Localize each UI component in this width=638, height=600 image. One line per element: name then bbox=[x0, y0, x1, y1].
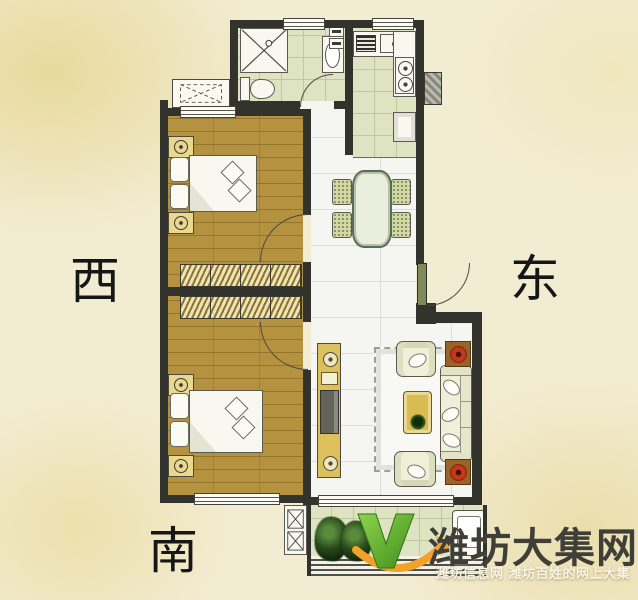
balcony-wall-left bbox=[307, 505, 311, 576]
chair-icon bbox=[391, 212, 411, 238]
dining-table-icon bbox=[352, 170, 392, 248]
window-icon bbox=[180, 106, 236, 118]
entry-door-arc-icon bbox=[427, 263, 470, 306]
balcony-sliding-door-icon bbox=[318, 495, 454, 507]
kitchen-cabinet bbox=[393, 112, 416, 142]
blanket-fold bbox=[190, 183, 214, 211]
coffee-table-icon bbox=[403, 391, 432, 434]
plant-stand-icon bbox=[445, 459, 471, 485]
chair-icon bbox=[332, 179, 352, 205]
wardrobe-icon bbox=[180, 264, 302, 287]
wall-left bbox=[160, 100, 168, 503]
pillow-icon bbox=[170, 157, 189, 182]
wall-bath-kitchen-divider bbox=[345, 20, 353, 155]
duct-box-icon bbox=[329, 38, 344, 49]
wall-mid-upper bbox=[303, 108, 311, 215]
pillow-icon bbox=[170, 421, 189, 447]
window-icon bbox=[283, 18, 325, 30]
wall-bedroom-divider bbox=[160, 287, 311, 296]
flower-icon bbox=[450, 346, 467, 363]
pillow-icon bbox=[170, 184, 189, 209]
bed-icon bbox=[189, 155, 257, 212]
chair-icon bbox=[332, 212, 352, 238]
shower-icon bbox=[240, 28, 288, 73]
window-icon bbox=[372, 18, 414, 30]
armchair-icon bbox=[394, 451, 436, 487]
compass-south-label: 南 bbox=[148, 526, 198, 576]
bed-icon bbox=[189, 390, 263, 453]
nightstand-icon bbox=[168, 212, 194, 234]
entry-door-slab bbox=[417, 263, 427, 306]
sofa-icon bbox=[440, 365, 472, 462]
ac-platform-icon bbox=[172, 79, 230, 108]
wardrobe-icon bbox=[180, 296, 302, 319]
wall-right-upper bbox=[416, 20, 424, 265]
plant-icon bbox=[341, 521, 372, 561]
floorplan-canvas: 西 东 南 潍坊大集网 潍坊信息网 潍坊百姓的网上大集 bbox=[0, 0, 638, 600]
compass-west-label: 西 bbox=[70, 256, 120, 306]
balcony-wall-right bbox=[483, 505, 487, 576]
wall-mid-lower bbox=[303, 370, 311, 497]
toilet-bowl-icon bbox=[250, 79, 275, 99]
chair-icon bbox=[391, 179, 411, 205]
washing-machine-icon bbox=[452, 510, 486, 556]
toilet-icon bbox=[240, 77, 250, 101]
nightstand-icon bbox=[168, 455, 194, 477]
window-icon bbox=[194, 493, 280, 505]
stove-icon bbox=[395, 57, 414, 94]
wall-bathroom-left bbox=[230, 20, 238, 109]
blanket-fold bbox=[190, 422, 216, 452]
vent-icon bbox=[356, 35, 376, 52]
armchair-icon bbox=[396, 341, 436, 377]
flower-icon bbox=[450, 464, 467, 481]
tv-cabinet-icon bbox=[317, 343, 341, 478]
plant-stand-icon bbox=[445, 341, 471, 367]
wall-right-living bbox=[472, 312, 482, 505]
compass-east-label: 东 bbox=[510, 254, 560, 304]
flue-icon bbox=[424, 72, 442, 105]
shaft-icon bbox=[284, 505, 307, 555]
tv-icon bbox=[320, 390, 339, 434]
pillow-icon bbox=[170, 393, 189, 419]
